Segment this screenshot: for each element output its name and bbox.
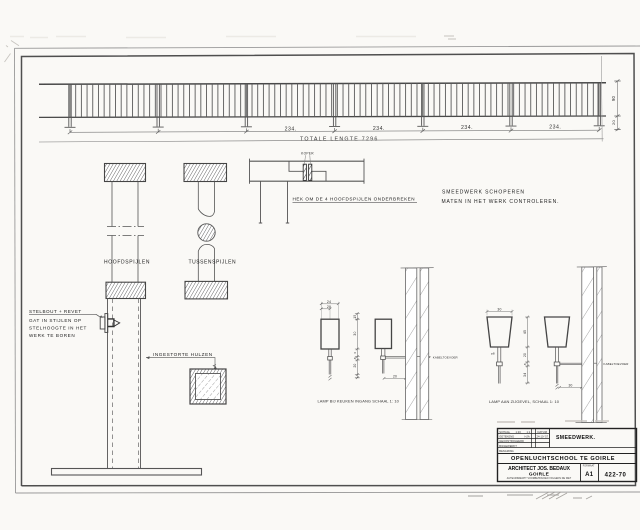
svg-text:GETEKEND: GETEKEND — [499, 435, 514, 439]
svg-text:24: 24 — [327, 300, 331, 304]
svg-text:20: 20 — [523, 353, 527, 357]
svg-text:OPENLUCHTSCHOOL TE GOIRLE: OPENLUCHTSCHOOL TE GOIRLE — [511, 456, 615, 462]
svg-text:1:1: 1:1 — [527, 430, 531, 434]
svg-text:MATEN IN HET WERK CONTROLER: MATEN IN HET WERK CONTROLEREN. — [442, 199, 560, 205]
svg-text:8: 8 — [523, 363, 527, 365]
svg-text:INGESTORTE HULZEN: INGESTORTE HULZEN — [153, 352, 213, 357]
svg-text:30: 30 — [497, 308, 501, 312]
svg-text:SMEEDWERK SCHOPEREN: SMEEDWERK SCHOPEREN — [442, 189, 525, 195]
svg-text:HOOFDSPIJLEN: HOOFDSPIJLEN — [104, 259, 150, 265]
svg-text:45: 45 — [523, 330, 527, 334]
svg-text:34: 34 — [523, 373, 527, 377]
svg-text:20: 20 — [611, 120, 616, 126]
svg-text:24-10-’57: 24-10-’57 — [537, 435, 549, 439]
svg-text:GAT IN STIJLEN OP: GAT IN STIJLEN OP — [29, 318, 82, 323]
svg-text:90: 90 — [611, 96, 616, 102]
svg-text:FORMAAT: FORMAAT — [583, 464, 595, 467]
svg-text:8: 8 — [353, 357, 357, 359]
svg-text:GOIRLE: GOIRLE — [529, 472, 550, 478]
svg-text:TUSSENSPIJLEN: TUSSENSPIJLEN — [189, 259, 237, 265]
svg-text:KABELTOEVOER: KABELTOEVOER — [604, 362, 629, 366]
svg-text:AUTEURSRECHT VOORBEHOUDEN VOLG: AUTEURSRECHT VOORBEHOUDEN VOLGENS DE WET — [507, 477, 572, 480]
svg-text:234.: 234. — [373, 126, 385, 132]
svg-text:15: 15 — [353, 315, 357, 319]
svg-text:KABELTOEVOER: KABELTOEVOER — [433, 356, 458, 360]
svg-text:SMEEDWERK.: SMEEDWERK. — [556, 435, 595, 441]
svg-text:TOTALE LENGTE 7296: TOTALE LENGTE 7296 — [300, 136, 379, 142]
svg-text:1:20: 1:20 — [516, 430, 522, 434]
svg-text:234.: 234. — [461, 125, 473, 131]
svg-text:BENAMING: BENAMING — [499, 449, 514, 453]
svg-text:ARCHITECT JOS. BEDAUX: ARCHITECT JOS. BEDAUX — [508, 466, 570, 472]
svg-text:HEK OM DE 4 HOOFDSPIJLEN OND: HEK OM DE 4 HOOFDSPIJLEN ONDERBREKEN — [293, 197, 416, 202]
svg-text:HJA: HJA — [525, 435, 530, 439]
svg-text:BIJGEWERKT: BIJGEWERKT — [499, 444, 517, 448]
svg-text:LAMP BIJ KEUKEN INGANG SCHA: LAMP BIJ KEUKEN INGANG SCHAAL 1: 10 — [318, 398, 400, 403]
svg-text:⌀8: ⌀8 — [491, 351, 495, 355]
svg-text:LAMP AAN ZIJGEVEL, SCHAAL 1: LAMP AAN ZIJGEVEL, SCHAAL 1: 10 — [489, 399, 560, 404]
svg-text:6: 6 — [353, 352, 357, 354]
svg-text:STELHOOGTE IN HET: STELHOOGTE IN HET — [29, 325, 87, 330]
svg-text:20: 20 — [393, 374, 397, 378]
svg-text:SCHAAL: SCHAAL — [499, 430, 510, 434]
svg-text:WERK TE BOREN: WERK TE BOREN — [29, 333, 75, 338]
svg-text:20: 20 — [353, 364, 357, 368]
svg-text:234.: 234. — [549, 125, 561, 131]
svg-text:A1: A1 — [585, 472, 594, 478]
svg-text:STELBOUT + REVET: STELBOUT + REVET — [29, 309, 82, 314]
svg-text:GECONTROLEERD: GECONTROLEERD — [499, 439, 524, 443]
svg-text:422-70: 422-70 — [605, 472, 627, 478]
svg-text:DATUM: DATUM — [538, 430, 547, 434]
svg-text:KOPER: KOPER — [301, 151, 314, 155]
svg-text:30: 30 — [353, 331, 357, 335]
svg-text:30: 30 — [568, 383, 572, 387]
svg-text:234.: 234. — [285, 127, 297, 133]
